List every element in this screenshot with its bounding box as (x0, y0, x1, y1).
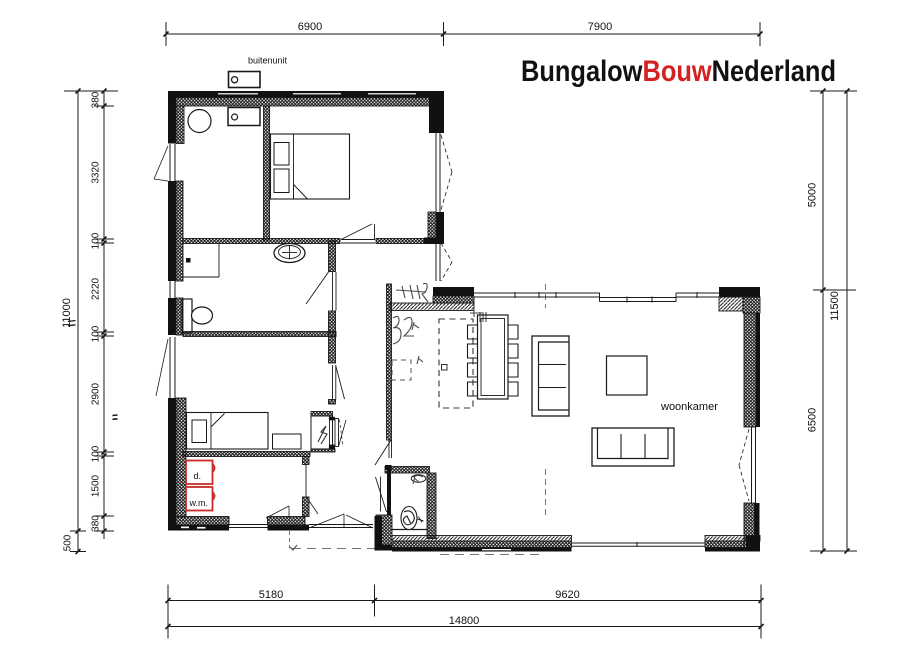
svg-text:100: 100 (91, 445, 102, 462)
svg-text:6900: 6900 (298, 21, 322, 33)
svg-text:3320: 3320 (91, 161, 102, 184)
svg-text:w.m.: w.m. (189, 498, 209, 508)
svg-text:2900: 2900 (91, 382, 102, 405)
svg-text:11000: 11000 (61, 298, 73, 328)
svg-text:14800: 14800 (449, 615, 480, 627)
svg-text:9620: 9620 (555, 589, 579, 601)
svg-text:5180: 5180 (259, 589, 283, 601)
svg-text:100: 100 (91, 325, 102, 342)
svg-text:woonkamer: woonkamer (660, 401, 718, 413)
svg-text:d.: d. (194, 471, 202, 481)
svg-text:5000: 5000 (807, 183, 819, 207)
svg-text:6500: 6500 (807, 408, 819, 432)
svg-text:380: 380 (91, 91, 102, 108)
svg-text:1500: 1500 (91, 474, 102, 497)
svg-text:500: 500 (63, 534, 74, 551)
svg-text:7900: 7900 (588, 21, 612, 33)
svg-text:BungalowBouwNederland: BungalowBouwNederland (521, 54, 836, 87)
svg-text:380: 380 (91, 515, 102, 532)
svg-text:2220: 2220 (91, 277, 102, 300)
svg-text:100: 100 (91, 232, 102, 249)
svg-text:buitenunit: buitenunit (248, 56, 288, 66)
svg-text:11500: 11500 (829, 291, 841, 321)
